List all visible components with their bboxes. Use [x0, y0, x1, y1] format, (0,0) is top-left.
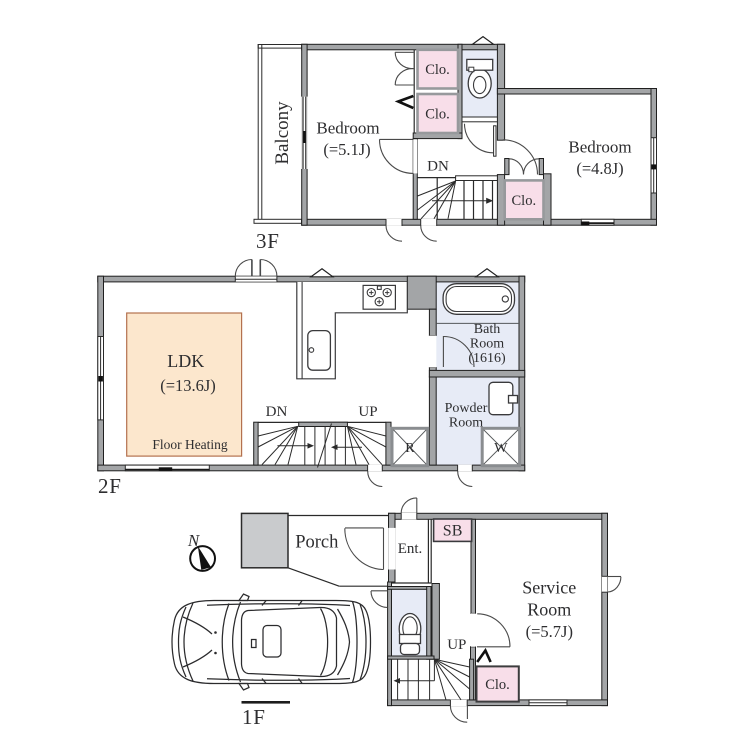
- svg-text:UP: UP: [358, 404, 377, 420]
- svg-text:Bedroom: Bedroom: [316, 119, 379, 138]
- svg-text:Ent.: Ent.: [398, 541, 423, 557]
- svg-text:(=5.7J): (=5.7J): [526, 622, 573, 641]
- svg-text:W: W: [494, 441, 508, 456]
- svg-text:DN: DN: [427, 159, 449, 175]
- svg-text:UP: UP: [447, 637, 466, 653]
- svg-text:Powder: Powder: [445, 401, 488, 416]
- svg-text:Porch: Porch: [295, 533, 338, 553]
- svg-text:Clo.: Clo.: [512, 193, 537, 209]
- svg-text:(=13.6J): (=13.6J): [160, 376, 216, 395]
- svg-text:R: R: [405, 441, 415, 456]
- svg-text:(1616): (1616): [468, 351, 506, 366]
- svg-text:Room: Room: [470, 337, 504, 352]
- svg-text:Bedroom: Bedroom: [568, 138, 631, 157]
- svg-text:(=5.1J): (=5.1J): [323, 140, 370, 159]
- svg-text:Balcony: Balcony: [272, 101, 293, 165]
- svg-text:Clo.: Clo.: [485, 677, 510, 693]
- svg-text:SB: SB: [443, 523, 463, 540]
- svg-text:N: N: [187, 531, 201, 550]
- svg-text:Room: Room: [449, 416, 483, 431]
- svg-text:Clo.: Clo.: [425, 62, 450, 78]
- svg-text:2F: 2F: [98, 474, 122, 498]
- svg-text:Service: Service: [522, 578, 576, 598]
- svg-text:Room: Room: [527, 600, 571, 620]
- svg-text:(=4.8J): (=4.8J): [576, 159, 623, 178]
- svg-text:LDK: LDK: [167, 351, 204, 371]
- svg-text:Bath: Bath: [474, 322, 500, 337]
- svg-text:Clo.: Clo.: [425, 107, 450, 123]
- svg-text:DN: DN: [266, 404, 288, 420]
- svg-text:3F: 3F: [256, 229, 280, 253]
- svg-text:Floor Heating: Floor Heating: [152, 437, 228, 452]
- svg-text:1F: 1F: [242, 705, 266, 729]
